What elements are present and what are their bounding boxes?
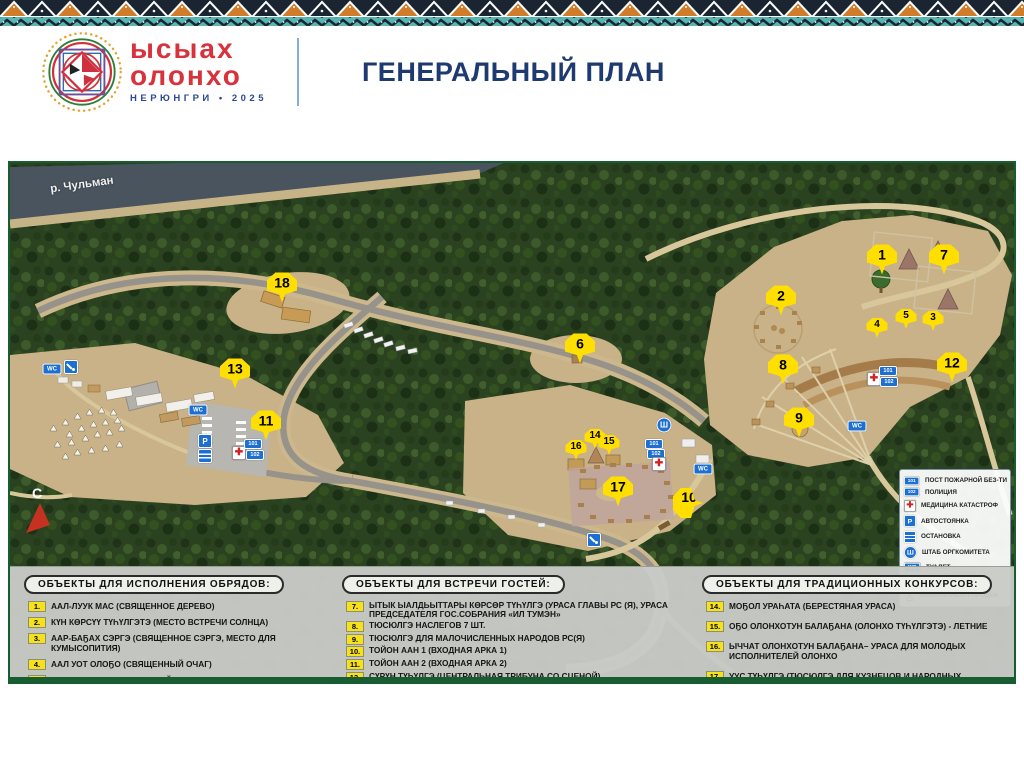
logo-emblem	[40, 30, 124, 114]
compass: С	[24, 485, 64, 541]
legend-item-number: 16.	[706, 641, 724, 652]
logo-title-line2: олонхо	[130, 63, 267, 90]
legend-item-number: 4.	[28, 659, 46, 670]
map-legend-label: ОСТАНОВКА	[921, 533, 961, 540]
legend-item-text: ОҔО ОЛОНХОТУН БАЛАҔАНА (ОЛОНХО ТҮҺҮЛГЭТЭ…	[729, 621, 987, 631]
map-legend-label: ПОЛИЦИЯ	[925, 489, 957, 496]
legend-item-number: 15.	[706, 621, 724, 632]
fire-icon: 101	[904, 476, 919, 485]
legend-item: 8.ТЮСЮЛГЭ НАСЛЕГОВ 7 ШТ.	[346, 621, 690, 632]
map-legend-row: 102ПОЛИЦИЯ	[904, 487, 1006, 497]
map-legend-row: ✚МЕДИЦИНА КАТАСТРОФ	[904, 499, 1006, 513]
wc-icon[interactable]: WC	[43, 364, 62, 375]
hq-icon[interactable]: Ш	[657, 418, 672, 433]
legend-item-text: ЫТЫК ЫАЛДЬЫТТАРЫ КӨРСӨР ТҮҺҮЛГЭ (УРАСА Г…	[369, 601, 690, 620]
decorative-border	[0, 0, 1024, 26]
legend-item: 1.ААЛ-ЛУУК МАС (СВЯЩЕННОЕ ДЕРЕВО)	[28, 601, 328, 612]
legend-item: 15.ОҔО ОЛОНХОТУН БАЛАҔАНА (ОЛОНХО ТҮҺҮЛГ…	[706, 621, 1008, 632]
legend-item-text: ААР-БАҔАХ СЭРГЭ (СВЯЩЕННОЕ СЭРГЭ, МЕСТО …	[51, 633, 328, 653]
shower-icon[interactable]	[587, 533, 601, 547]
legend-item-text: ТЮСЮЛГЭ НАСЛЕГОВ 7 ШТ.	[369, 621, 485, 630]
legend-box-1: ОБЪЕКТЫ ДЛЯ ИСПОЛНЕНИЯ ОБРЯДОВ:1.ААЛ-ЛУУ…	[24, 574, 328, 684]
legend-item-text: ТОЙОН ААН 1 (ВХОДНАЯ АРКА 1)	[369, 646, 507, 655]
police-icon[interactable]: 102	[246, 450, 264, 460]
map-legend-row: ШШТАБ ОРГКОМИТЕТА	[904, 545, 1006, 560]
legend-item-number: 7.	[346, 601, 364, 612]
legend-item: 9.ТЮСЮЛГЭ ДЛЯ МАЛОЧИСЛЕННЫХ НАРОДОВ РС(Я…	[346, 634, 690, 645]
legend-box-3: ОБЪЕКТЫ ДЛЯ ТРАДИЦИОННЫХ КОНКУРСОВ:14.МО…	[702, 574, 1008, 684]
legend-item: 14.МОҔОЛ УРАҺАТА (БЕРЕСТЯНАЯ УРАСА)	[706, 601, 1008, 612]
wc-icon[interactable]: WC	[848, 421, 867, 432]
compass-north-label: С	[32, 485, 42, 501]
map-bottom-bar	[10, 677, 1014, 682]
legend-item-text: ТЮСЮЛГЭ ДЛЯ МАЛОЧИСЛЕННЫХ НАРОДОВ РС(Я)	[369, 634, 585, 643]
cross-icon[interactable]: ✚	[652, 457, 666, 471]
legend-item-number: 10.	[346, 646, 364, 657]
legend-item-text: ТОЙОН ААН 2 (ВХОДНАЯ АРКА 2)	[369, 659, 507, 668]
map-legend-label: ПОСТ ПОЖАРНОЙ БЕЗ-ТИ	[925, 477, 1007, 484]
legend-item-number: 9.	[346, 634, 364, 645]
page-title: ГЕНЕРАЛЬНЫЙ ПЛАН	[362, 57, 665, 88]
legend-item-number: 11.	[346, 659, 364, 670]
map-legend-row: PАВТОСТОЯНКА	[904, 514, 1006, 528]
legend-box-title: ОБЪЕКТЫ ДЛЯ ВСТРЕЧИ ГОСТЕЙ:	[342, 575, 565, 594]
legend-box-title: ОБЪЕКТЫ ДЛЯ ИСПОЛНЕНИЯ ОБРЯДОВ:	[24, 575, 284, 594]
wc-icon[interactable]: WC	[694, 464, 713, 475]
legend-item: 2.КҮН КӨРСҮҮ ТҮҺҮЛГЭТЭ (МЕСТО ВСТРЕЧИ СО…	[28, 617, 328, 628]
parking-icon: P	[904, 515, 916, 527]
bus-icon[interactable]	[198, 449, 212, 463]
legend-item: 7.ЫТЫК ЫАЛДЬЫТТАРЫ КӨРСӨР ТҮҺҮЛГЭ (УРАСА…	[346, 601, 690, 620]
fire-icon[interactable]: 101	[879, 366, 897, 376]
logo-title-line1: ысыах	[130, 36, 267, 63]
hq-icon: Ш	[904, 546, 917, 559]
map-legend-label: МЕДИЦИНА КАТАСТРОФ	[921, 502, 998, 509]
legend-item-text: КҮН КӨРСҮҮ ТҮҺҮЛГЭТЭ (МЕСТО ВСТРЕЧИ СОЛН…	[51, 617, 268, 627]
legend-item: 4.ААЛ УОТ ОЛОҔО (СВЯЩЕННЫЙ ОЧАГ)	[28, 659, 328, 670]
map-legend-label: АВТОСТОЯНКА	[921, 518, 969, 525]
parking-icon[interactable]: P	[198, 434, 212, 448]
header-divider	[297, 38, 299, 106]
legend-item-text: ААЛ УОТ ОЛОҔО (СВЯЩЕННЫЙ ОЧАГ)	[51, 659, 212, 669]
legend-box-title: ОБЪЕКТЫ ДЛЯ ТРАДИЦИОННЫХ КОНКУРСОВ:	[702, 575, 992, 594]
cross-icon: ✚	[904, 500, 916, 512]
map: р. Чульман С 172181311616141517108945312…	[8, 161, 1016, 684]
legend-item-number: 14.	[706, 601, 724, 612]
legend-item-text: ЫЧЧАТ ОЛОНХОТУН БАЛАҔАНА– УРАСА ДЛЯ МОЛО…	[729, 641, 1008, 661]
legend-box-2: ОБЪЕКТЫ ДЛЯ ВСТРЕЧИ ГОСТЕЙ:7.ЫТЫК ЫАЛДЬЫ…	[342, 574, 690, 684]
legend-item-text: ААЛ-ЛУУК МАС (СВЯЩЕННОЕ ДЕРЕВО)	[51, 601, 214, 611]
police-icon[interactable]: 102	[880, 377, 898, 387]
compass-arrow-icon	[24, 501, 54, 537]
shower-icon[interactable]	[64, 360, 78, 374]
legend-item-number: 3.	[28, 633, 46, 644]
logo: ысыах олонхо НЕРЮНГРИ • 2025	[130, 36, 267, 103]
map-legend-row: 101ПОСТ ПОЖАРНОЙ БЕЗ-ТИ	[904, 476, 1006, 486]
legend-item: 16.ЫЧЧАТ ОЛОНХОТУН БАЛАҔАНА– УРАСА ДЛЯ М…	[706, 641, 1008, 661]
wc-icon[interactable]: WC	[189, 405, 208, 416]
legend-item: 11.ТОЙОН ААН 2 (ВХОДНАЯ АРКА 2)	[346, 659, 690, 670]
legend-item-number: 2.	[28, 617, 46, 628]
fire-icon[interactable]: 101	[244, 439, 262, 449]
legend-item-number: 8.	[346, 621, 364, 632]
legend-item-text: МОҔОЛ УРАҺАТА (БЕРЕСТЯНАЯ УРАСА)	[729, 601, 895, 611]
legend-band: ОБЪЕКТЫ ДЛЯ ИСПОЛНЕНИЯ ОБРЯДОВ:1.ААЛ-ЛУУ…	[10, 566, 1014, 677]
slide: ысыах олонхо НЕРЮНГРИ • 2025 ГЕНЕРАЛЬНЫЙ…	[0, 0, 1024, 768]
fire-icon[interactable]: 101	[645, 439, 663, 449]
map-legend-row: ОСТАНОВКА	[904, 530, 1006, 544]
legend-item: 10.ТОЙОН ААН 1 (ВХОДНАЯ АРКА 1)	[346, 646, 690, 657]
legend-item: 3.ААР-БАҔАХ СЭРГЭ (СВЯЩЕННОЕ СЭРГЭ, МЕСТ…	[28, 633, 328, 653]
bus-icon	[904, 531, 916, 543]
police-icon: 102	[904, 488, 919, 497]
logo-subtitle: НЕРЮНГРИ • 2025	[130, 94, 267, 103]
legend-item-number: 1.	[28, 601, 46, 612]
map-legend-label: ШТАБ ОРГКОМИТЕТА	[922, 549, 990, 556]
